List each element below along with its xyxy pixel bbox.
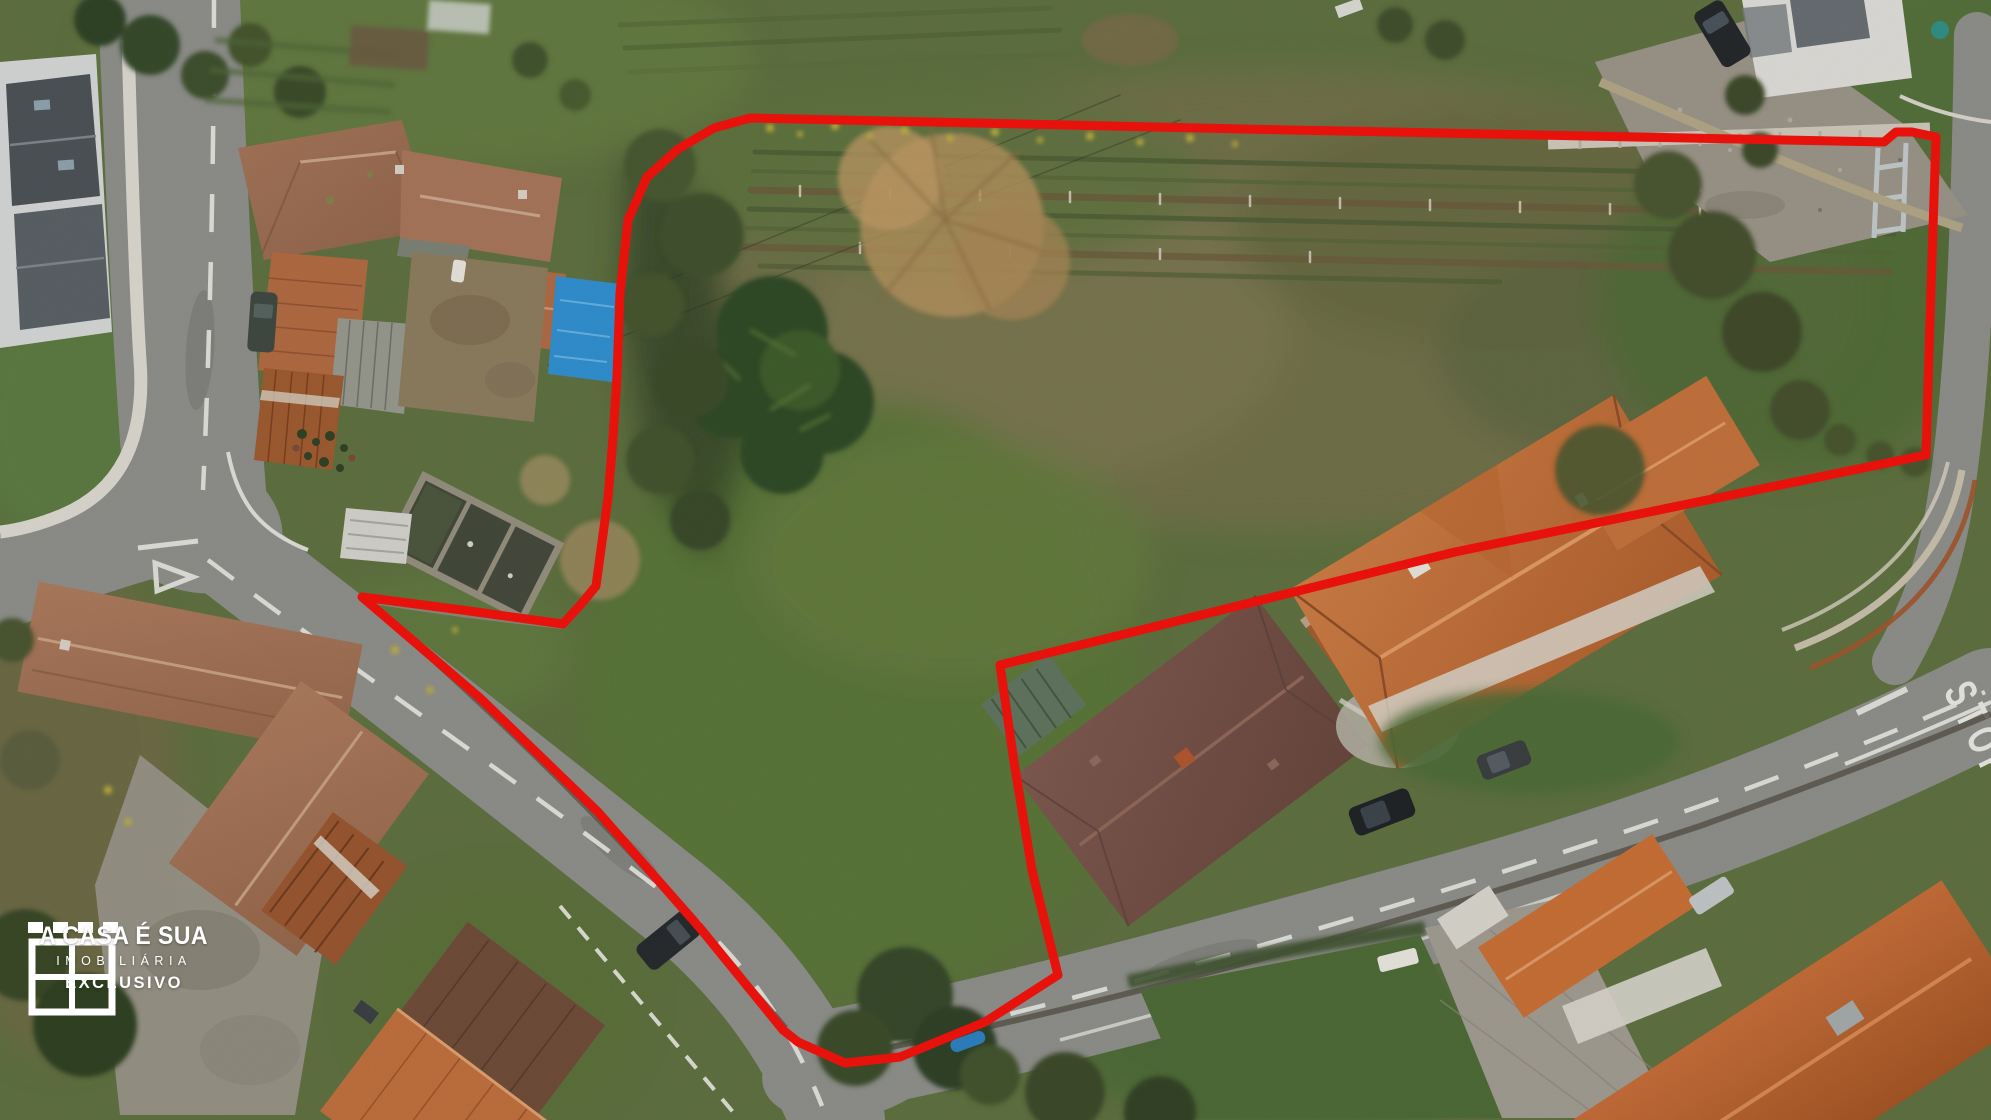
agency-watermark: A CASA É SUA IMOBILIÁRIA EXCLUSIVO bbox=[26, 922, 222, 993]
photo-grain bbox=[0, 0, 1991, 1120]
brand-name: A CASA É SUA bbox=[40, 922, 209, 951]
aerial-photo: STOP bbox=[0, 0, 1991, 1120]
